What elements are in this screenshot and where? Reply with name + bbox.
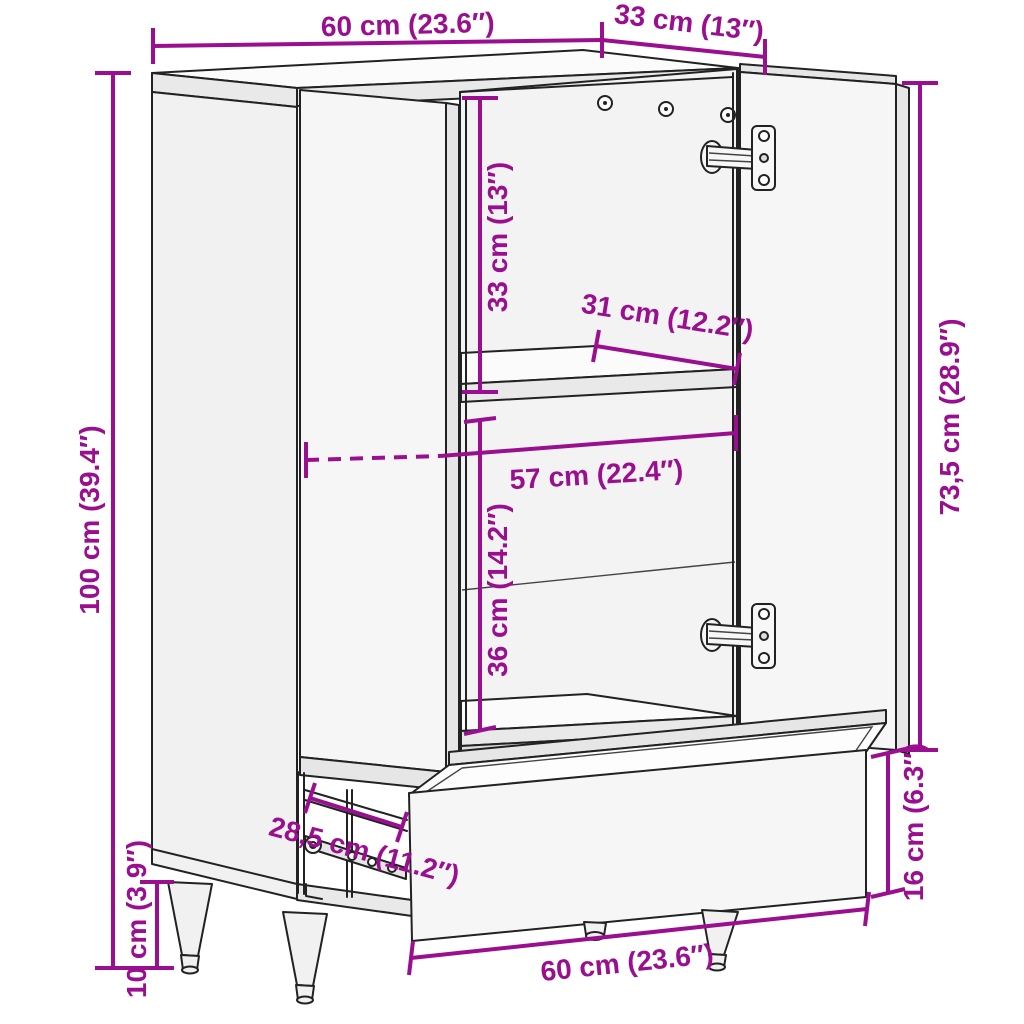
hinge-screw: [759, 609, 769, 619]
dimension-diagram: 60 cm (23.6″) 33 cm (13″) 100 cm (39.4″)…: [0, 0, 1024, 1024]
dim-drawer-height: 16 cm (6.3″): [871, 743, 929, 901]
dim-line: [153, 40, 602, 46]
left-door-edge: [446, 103, 459, 774]
leg-cone: [283, 912, 327, 986]
dim-line: [310, 798, 402, 827]
left-door-face: [300, 90, 446, 772]
dim-door-height: 73,5 cm (28.9″): [902, 83, 965, 750]
leg-cone: [168, 882, 212, 956]
screw-dot: [726, 113, 730, 117]
dim-label-lower-compartment: 36 cm (14.2″): [482, 503, 513, 677]
dim-label-top-depth: 33 cm (13″): [613, 0, 766, 47]
hinge-bolt: [760, 632, 768, 640]
left-door-open: [300, 90, 459, 790]
hinge-screw: [759, 653, 769, 663]
dim-label-door-height: 73,5 cm (28.9″): [934, 318, 965, 515]
left-side-panel: [152, 92, 297, 899]
leg-front-left: [283, 912, 327, 1004]
dim-label-top-width: 60 cm (23.6″): [321, 7, 495, 43]
hinge-bolt: [760, 154, 768, 162]
dim-tick: [409, 941, 413, 975]
screw-dot: [664, 107, 668, 111]
dim-label-total-height: 100 cm (39.4″): [74, 425, 105, 614]
leg-foot-tip: [297, 997, 313, 1004]
diagram-canvas: 60 cm (23.6″) 33 cm (13″) 100 cm (39.4″)…: [0, 0, 1024, 1024]
hinge-screw: [759, 175, 769, 185]
bottom-board-edge: [297, 884, 412, 916]
dim-label-leg-height: 10 cm (3.9″): [121, 840, 152, 998]
right-door-outer-edge: [896, 84, 909, 754]
dim-label-upper-compartment: 33 cm (13″): [482, 162, 513, 312]
screw-dot: [603, 101, 607, 105]
hinge-arm-icon: [707, 624, 757, 647]
leg-foot-tip: [182, 967, 198, 974]
hinge-screw: [759, 131, 769, 141]
left-side-face: [152, 92, 297, 899]
hinge-arm-icon: [707, 146, 757, 169]
dim-label-drawer-height: 16 cm (6.3″): [898, 743, 929, 901]
leg-back-left: [168, 882, 212, 974]
dim-label-drawer-width: 60 cm (23.6″): [539, 938, 715, 987]
